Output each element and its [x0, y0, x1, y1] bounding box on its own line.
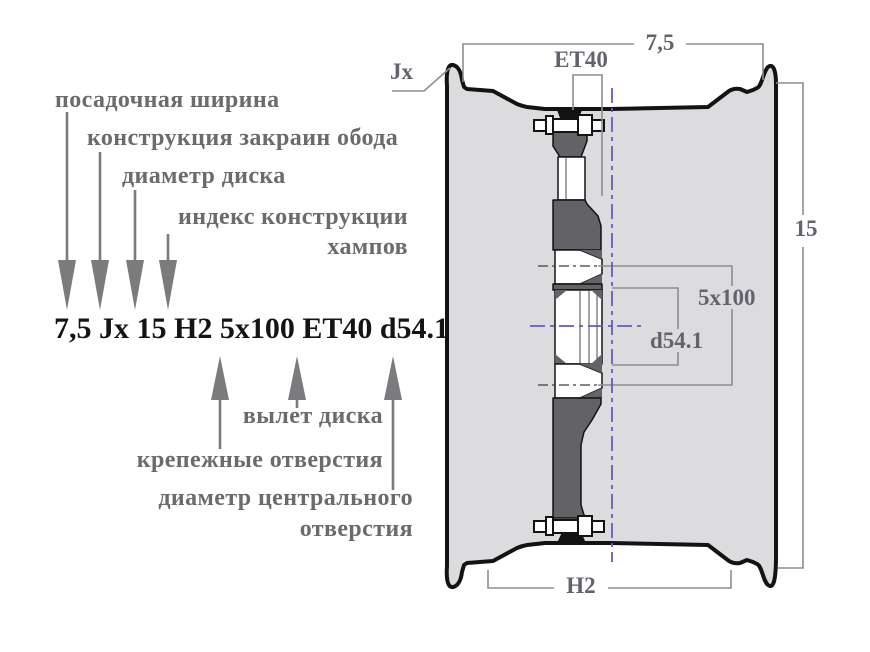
arrow-down-hump — [159, 260, 177, 310]
dim-flange-type: Jx — [390, 60, 413, 83]
label-seat-width: посадочная ширина — [55, 88, 280, 112]
disc-sliver — [553, 284, 602, 290]
arrow-up-center-bore — [384, 356, 402, 400]
label-hump-index-line2: хампов — [327, 235, 408, 259]
arrow-up-offset — [288, 356, 306, 400]
arrow-up-bolt-pattern — [211, 356, 229, 400]
dim-rim-width: 7,5 — [634, 31, 686, 54]
wheel-marking-diagram: посадочная ширина конструкция закраин об… — [0, 0, 870, 652]
arrow-down-rim-width — [58, 260, 76, 310]
center-bore — [555, 290, 602, 364]
dim-bolt-pattern: 5x100 — [696, 286, 758, 309]
label-center-bore-line2: отверстия — [300, 517, 413, 541]
label-disc-diameter: диаметр диска — [122, 164, 286, 188]
label-hump-index-line1: индекс конструкции — [178, 205, 408, 229]
label-bolt-holes: крепежные отверстия — [137, 448, 383, 472]
dim-offset: ET40 — [546, 48, 616, 71]
dim-hump: H2 — [554, 574, 608, 597]
dim-center-bore: d54.1 — [648, 329, 705, 352]
label-center-bore-line1: диаметр центрального — [158, 486, 413, 510]
arrow-down-diameter — [126, 260, 144, 310]
disc-window — [558, 157, 585, 200]
label-disc-offset: вылет диска — [243, 404, 383, 428]
arrow-down-flange — [91, 260, 109, 310]
wheel-marking-text: 7,5 Jx 15 H2 5x100 ET40 d54.1 — [54, 314, 449, 344]
dim-diameter: 15 — [786, 217, 826, 240]
label-flange-design: конструкция закраин обода — [87, 126, 398, 150]
